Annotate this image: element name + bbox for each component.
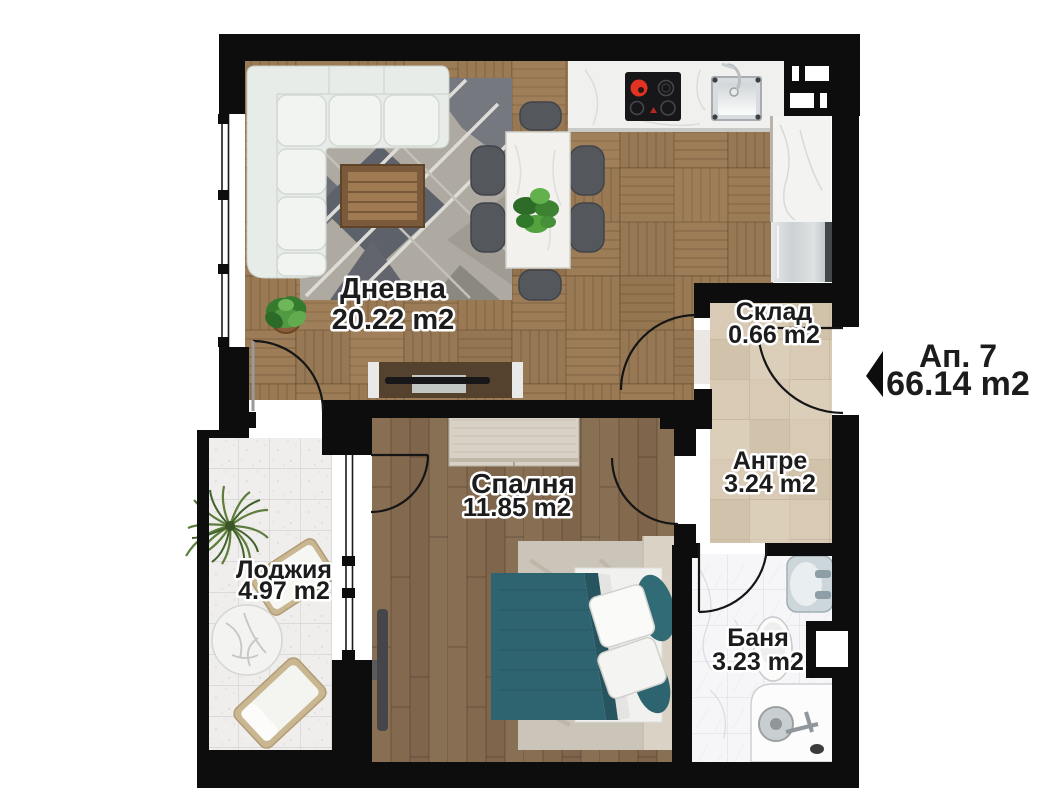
svg-text:20.22 m2: 20.22 m2 xyxy=(332,304,455,336)
svg-text:4.97 m2: 4.97 m2 xyxy=(238,577,330,605)
svg-text:11.85 m2: 11.85 m2 xyxy=(463,492,571,522)
svg-text:Дневна: Дневна xyxy=(340,273,447,305)
svg-text:3.23 m2: 3.23 m2 xyxy=(712,648,804,676)
svg-text:0.66 m2: 0.66 m2 xyxy=(728,321,820,349)
svg-text:66.14 m2: 66.14 m2 xyxy=(886,365,1030,403)
svg-text:3.24 m2: 3.24 m2 xyxy=(724,470,816,498)
